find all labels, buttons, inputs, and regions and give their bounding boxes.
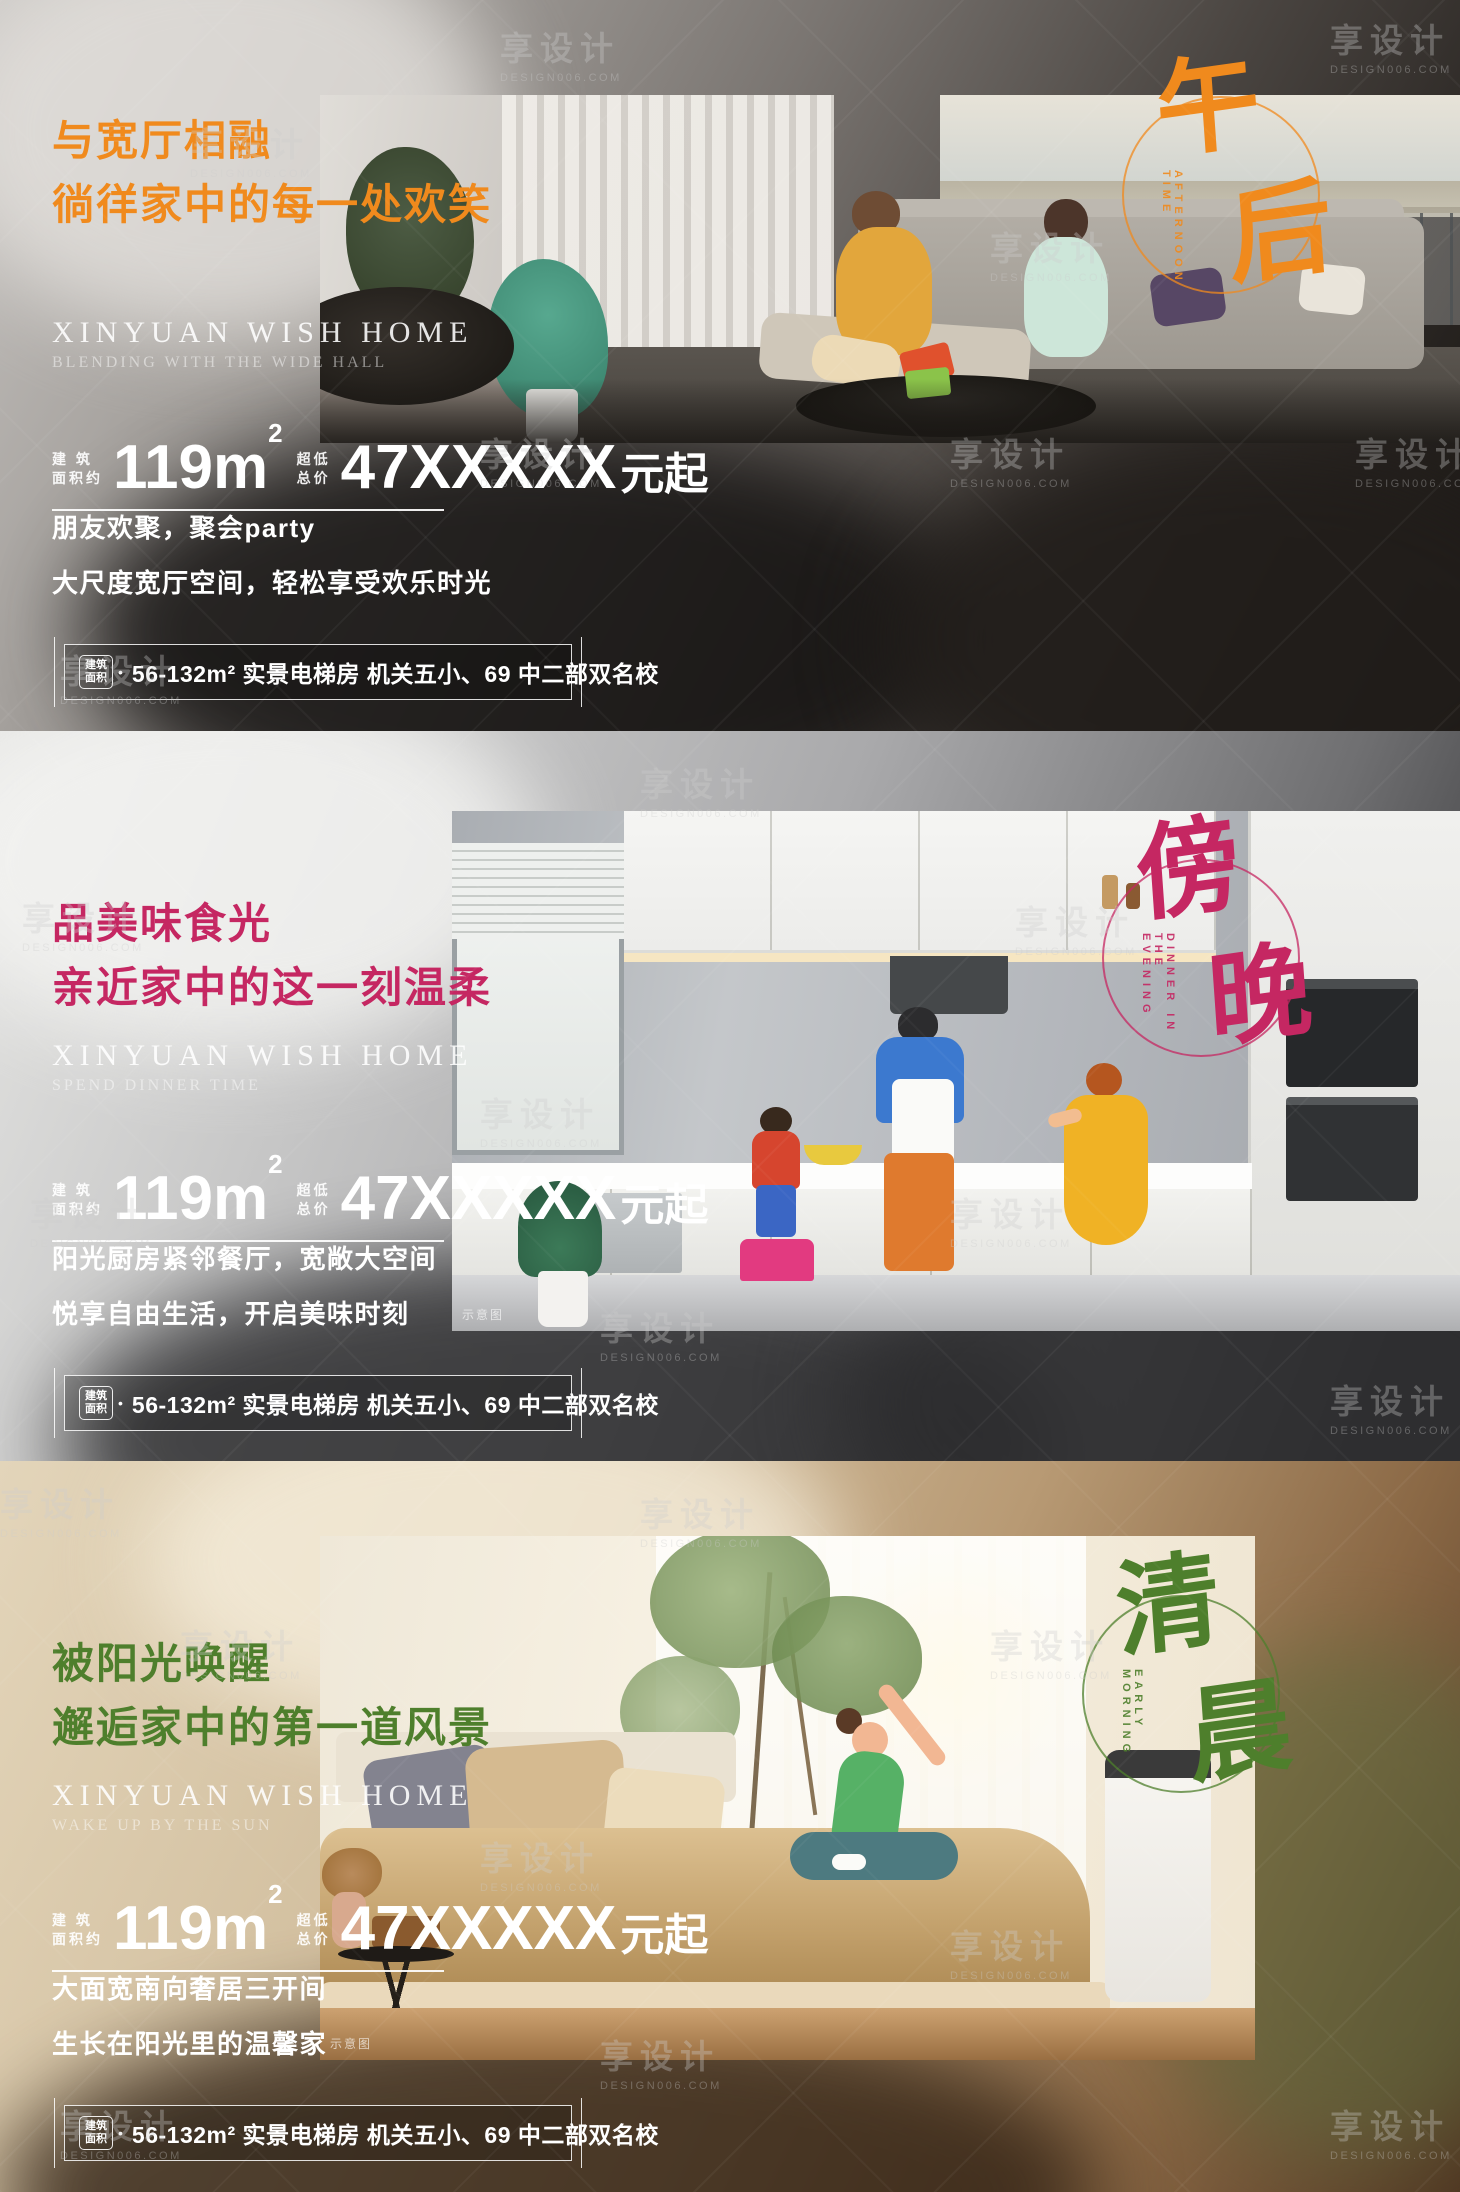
footer-bar: 建筑面积 • 56-132m² 实景电梯房 机关五小、69 中二部双名校	[64, 644, 572, 700]
en-title: XINYUAN WISH HOME	[52, 316, 473, 350]
description-line: 阳光厨房紧邻餐厅，宽敞大空间	[52, 1239, 437, 1276]
english-subtitle-block: XINYUAN WISH HOME WAKE UP BY THE SUN	[52, 1779, 473, 1835]
price-block: 建 筑面积约 119m2 超低总价 47XXXXX 元起	[52, 1173, 708, 1242]
price-block: 建 筑面积约 119m2 超低总价 47XXXXX 元起	[52, 442, 708, 511]
description-line: 朋友欢聚，聚会party	[52, 508, 492, 545]
description-block: 大面宽南向奢居三开间 生长在阳光里的温馨家	[52, 1969, 327, 2079]
area-label: 建 筑面积约	[52, 450, 103, 486]
superscript: 2	[268, 1879, 282, 1909]
total-value: 47XXXXX	[341, 1903, 617, 1956]
tile-floor	[452, 1275, 1460, 1331]
en-subtitle: SPEND DINNER TIME	[52, 1077, 473, 1095]
father-illustration	[898, 1007, 938, 1041]
panel-headline: 与宽厅相融 徜徉家中的每一处欢笑	[52, 120, 492, 248]
woman-illustration	[1024, 237, 1108, 357]
bullet-icon: •	[118, 1395, 123, 1411]
range-hood	[890, 956, 1008, 1014]
calligraphy-char: 傍	[1133, 810, 1243, 928]
emblem-english-label: EARLY MORNING	[1120, 1669, 1144, 1783]
wood-floor	[320, 2008, 1255, 2060]
superscript: 2	[268, 418, 282, 448]
calligraphy-char: 后	[1225, 173, 1335, 291]
total-label: 超低总价	[297, 1911, 331, 1947]
headline-line: 亲近家中的这一刻温柔	[52, 967, 492, 1009]
area-value: 119m2	[113, 442, 283, 495]
footer-box: 建筑面积 • 56-132m² 实景电梯房 机关五小、69 中二部双名校	[64, 1375, 572, 1431]
background-blur	[880, 430, 1460, 731]
evening-emblem: 傍 晚 DINNER IN THE EVENING	[1096, 831, 1312, 1047]
footer-box: 建筑面积 • 56-132m² 实景电梯房 机关五小、69 中二部双名校	[64, 2105, 572, 2161]
headline-line: 徜徉家中的每一处欢笑	[52, 184, 492, 226]
superscript: 2	[268, 1149, 282, 1179]
description-block: 朋友欢聚，聚会party 大尺度宽厅空间，轻松享受欢乐时光	[52, 508, 492, 618]
footer-bar: 建筑面积 • 56-132m² 实景电梯房 机关五小、69 中二部双名校	[64, 2105, 572, 2161]
total-label: 超低总价	[297, 1181, 331, 1217]
bullet-icon: •	[118, 2125, 123, 2141]
price-suffix: 元起	[620, 1186, 708, 1226]
english-subtitle-block: XINYUAN WISH HOME SPEND DINNER TIME	[52, 1039, 473, 1095]
footer-text: 56-132m² 实景电梯房 机关五小、69 中二部双名校	[132, 2116, 659, 2150]
panel-headline: 被阳光唤醒 邂逅家中的第一道风景	[52, 1643, 492, 1771]
area-badge-icon: 建筑面积	[79, 655, 113, 689]
en-subtitle: WAKE UP BY THE SUN	[52, 1817, 473, 1835]
headline-line: 品美味食光	[52, 903, 492, 945]
english-subtitle-block: XINYUAN WISH HOME BLENDING WITH THE WIDE…	[52, 316, 473, 372]
area-value: 119m2	[113, 1173, 283, 1226]
boy-illustration	[756, 1185, 796, 1237]
headline-line: 与宽厅相融	[52, 120, 492, 162]
headline-line: 邂逅家中的第一道风景	[52, 1707, 492, 1749]
total-value: 47XXXXX	[341, 1173, 617, 1226]
area-badge-icon: 建筑面积	[79, 1386, 113, 1420]
calligraphy-char: 清	[1113, 1546, 1223, 1664]
area-label: 建 筑面积约	[52, 1181, 103, 1217]
boy-illustration	[752, 1131, 800, 1189]
area-label: 建 筑面积约	[52, 1911, 103, 1947]
en-subtitle: BLENDING WITH THE WIDE HALL	[52, 354, 473, 372]
calligraphy-char: 晚	[1205, 936, 1315, 1054]
total-label: 超低总价	[297, 450, 331, 486]
en-title: XINYUAN WISH HOME	[52, 1039, 473, 1073]
panel-morning: 示意图 被阳光唤醒 邂逅家中的第一道风景 XINYUAN WISH HOME W…	[0, 1461, 1460, 2192]
area-value: 119m2	[113, 1903, 283, 1956]
description-line: 生长在阳光里的温馨家	[52, 2024, 327, 2061]
panel-evening: 示意图 品美味食光 亲近家中的这一刻温柔 XINYUAN WISH HOME S…	[0, 731, 1460, 1461]
footer-text: 56-132m² 实景电梯房 机关五小、69 中二部双名校	[132, 655, 659, 689]
footer-bar: 建筑面积 • 56-132m² 实景电梯房 机关五小、69 中二部双名校	[64, 1375, 572, 1431]
afternoon-emblem: 午 后 AFTERNOON TIME	[1116, 68, 1332, 284]
footer-box: 建筑面积 • 56-132m² 实景电梯房 机关五小、69 中二部双名校	[64, 644, 572, 700]
woman-illustration	[836, 227, 932, 355]
disclaimer-label: 示意图	[330, 2035, 372, 2052]
price-block: 建 筑面积约 119m2 超低总价 47XXXXX 元起	[52, 1903, 708, 1972]
price-row: 建 筑面积约 119m2 超低总价 47XXXXX 元起	[52, 1903, 708, 1956]
disclaimer-label: 示意图	[462, 1306, 504, 1323]
description-line: 悦享自由生活，开启美味时刻	[52, 1294, 437, 1331]
yoga-woman-illustration	[790, 1832, 958, 1880]
area-badge-icon: 建筑面积	[79, 2116, 113, 2150]
yoga-woman-illustration	[832, 1854, 866, 1870]
plant-pot	[538, 1271, 588, 1327]
calligraphy-char: 晨	[1185, 1672, 1295, 1790]
real-estate-poster: 示意图 与宽厅相融 徜徉家中的每一处欢笑 XINYUAN WISH HOME B…	[0, 0, 1460, 2192]
total-value: 47XXXXX	[341, 442, 617, 495]
panel-afternoon: 示意图 与宽厅相融 徜徉家中的每一处欢笑 XINYUAN WISH HOME B…	[0, 0, 1460, 731]
calligraphy-char: 午	[1153, 47, 1263, 165]
price-suffix: 元起	[620, 455, 708, 495]
bullet-icon: •	[118, 664, 123, 680]
emblem-english-label: AFTERNOON TIME	[1160, 170, 1184, 285]
mother-illustration	[1086, 1063, 1122, 1097]
description-block: 阳光厨房紧邻餐厅，宽敞大空间 悦享自由生活，开启美味时刻	[52, 1239, 437, 1349]
description-line: 大面宽南向奢居三开间	[52, 1969, 327, 2006]
step-stool	[740, 1239, 814, 1281]
father-illustration	[884, 1153, 954, 1271]
footer-text: 56-132m² 实景电梯房 机关五小、69 中二部双名校	[132, 1386, 659, 1420]
morning-emblem: 清 晨 EARLY MORNING	[1076, 1567, 1292, 1783]
en-title: XINYUAN WISH HOME	[52, 1779, 473, 1813]
headline-line: 被阳光唤醒	[52, 1643, 492, 1685]
panel-headline: 品美味食光 亲近家中的这一刻温柔	[52, 903, 492, 1031]
price-row: 建 筑面积约 119m2 超低总价 47XXXXX 元起	[52, 1173, 708, 1226]
price-suffix: 元起	[620, 1916, 708, 1956]
description-line: 大尺度宽厅空间，轻松享受欢乐时光	[52, 563, 492, 600]
price-row: 建 筑面积约 119m2 超低总价 47XXXXX 元起	[52, 442, 708, 495]
built-in-oven	[1286, 1097, 1418, 1201]
emblem-english-label: DINNER IN THE EVENING	[1140, 933, 1176, 1047]
